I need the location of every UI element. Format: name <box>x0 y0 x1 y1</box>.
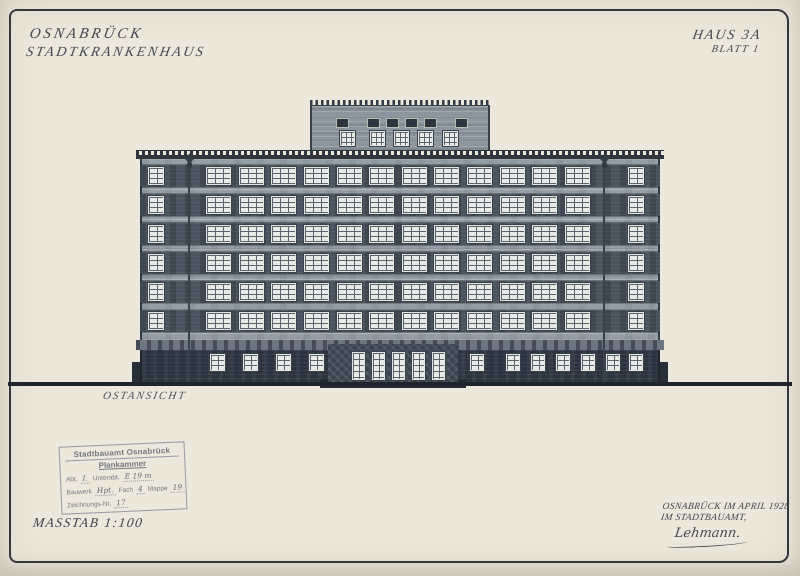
stamp-label: Abt. <box>66 476 78 483</box>
drawing-sheet: OSNABRÜCK STADTKRANKENHAUS HAUS 3A BLATT… <box>0 0 800 576</box>
lamp-ornament-icon <box>187 162 192 168</box>
stamp-value: 4 <box>136 484 145 494</box>
window <box>402 196 427 214</box>
window <box>532 312 557 330</box>
window <box>565 312 590 330</box>
stamp-label: Fach <box>118 487 133 495</box>
narrow-window <box>148 312 164 330</box>
window <box>434 312 459 330</box>
window <box>434 283 459 301</box>
window <box>206 196 231 214</box>
penthouse-vent-window <box>424 118 437 128</box>
office-line: IM STADTBAUAMT, <box>660 513 788 524</box>
window <box>304 196 329 214</box>
narrow-window <box>628 312 644 330</box>
window <box>206 225 231 243</box>
ground-window <box>309 354 324 371</box>
stamp-value: 17 <box>114 498 128 509</box>
window <box>369 283 394 301</box>
window <box>532 196 557 214</box>
penthouse-vent-window <box>336 118 349 128</box>
window <box>565 283 590 301</box>
penthouse-window <box>443 131 458 146</box>
window <box>565 225 590 243</box>
window <box>369 196 394 214</box>
window <box>271 196 296 214</box>
window <box>337 196 362 214</box>
window <box>500 283 525 301</box>
window <box>206 312 231 330</box>
ground-window <box>629 354 643 371</box>
window <box>434 254 459 272</box>
ground-window <box>506 354 520 371</box>
ground-window <box>276 354 291 371</box>
signature: Lehmann. <box>674 526 787 541</box>
narrow-window <box>628 167 644 185</box>
ground-window <box>243 354 258 371</box>
stamp-label: Mappe <box>148 485 168 493</box>
stamp-value: I. <box>80 473 90 483</box>
window <box>271 312 296 330</box>
entrance-door <box>412 352 425 380</box>
window <box>239 312 264 330</box>
window <box>434 167 459 185</box>
narrow-window <box>148 167 164 185</box>
ground-window <box>556 354 570 371</box>
window <box>532 254 557 272</box>
stamp-value: Hpt. <box>95 485 116 496</box>
ground-window <box>581 354 595 371</box>
window <box>500 167 525 185</box>
window <box>467 283 492 301</box>
penthouse-vent-window <box>455 118 468 128</box>
window <box>500 196 525 214</box>
entrance-door <box>372 352 385 380</box>
window <box>304 167 329 185</box>
window <box>500 225 525 243</box>
window <box>239 283 264 301</box>
window <box>239 196 264 214</box>
entrance-door <box>432 352 445 380</box>
window <box>500 312 525 330</box>
window <box>532 225 557 243</box>
window <box>271 283 296 301</box>
window <box>369 167 394 185</box>
stamp-row-zeichnung: Zeichnungs-Nr. 17 <box>67 495 181 510</box>
downpipe <box>603 168 605 382</box>
scale-label: MASSTAB 1:100 <box>32 515 145 531</box>
lamp-ornament-icon <box>602 162 607 168</box>
window <box>271 167 296 185</box>
date-line: OSNABRÜCK IM APRIL 1928 <box>662 502 790 513</box>
narrow-window <box>148 254 164 272</box>
window <box>467 225 492 243</box>
window <box>337 283 362 301</box>
window <box>271 225 296 243</box>
penthouse-vent-window <box>405 118 418 128</box>
stamp-label: Zeichnungs-Nr. <box>67 501 111 510</box>
window <box>337 167 362 185</box>
window <box>369 225 394 243</box>
window <box>337 225 362 243</box>
window <box>304 254 329 272</box>
downpipe <box>188 168 190 382</box>
window <box>337 254 362 272</box>
window <box>271 254 296 272</box>
ground-window <box>470 354 484 371</box>
window <box>402 312 427 330</box>
ground-window <box>210 354 225 371</box>
window <box>532 167 557 185</box>
narrow-window <box>628 254 644 272</box>
narrow-window <box>628 196 644 214</box>
window <box>434 196 459 214</box>
stamp-value: E 19 m <box>122 471 153 482</box>
window <box>402 283 427 301</box>
window <box>467 167 492 185</box>
window <box>369 254 394 272</box>
window <box>239 225 264 243</box>
window <box>239 254 264 272</box>
window <box>369 312 394 330</box>
window <box>467 196 492 214</box>
entrance-door <box>352 352 365 380</box>
narrow-window <box>148 225 164 243</box>
window <box>402 254 427 272</box>
date-signature-block: OSNABRÜCK IM APRIL 1928 IM STADTBAUAMT, … <box>657 502 790 547</box>
window <box>337 312 362 330</box>
narrow-window <box>628 225 644 243</box>
window <box>565 167 590 185</box>
ground-window <box>531 354 545 371</box>
window <box>206 254 231 272</box>
ground-window <box>606 354 620 371</box>
penthouse-window <box>394 131 409 146</box>
penthouse-vent-window <box>367 118 380 128</box>
window <box>467 312 492 330</box>
narrow-window <box>628 283 644 301</box>
window <box>565 254 590 272</box>
window <box>467 254 492 272</box>
narrow-window <box>148 283 164 301</box>
stamp-label: Unterabt. <box>93 474 120 482</box>
window <box>206 167 231 185</box>
narrow-window <box>148 196 164 214</box>
penthouse-window <box>340 131 355 146</box>
penthouse-window <box>418 131 433 146</box>
window <box>304 312 329 330</box>
plan-stamp: Stadtbauamt Osnabrück Plankammer Abt. I.… <box>59 441 188 514</box>
window <box>304 283 329 301</box>
window <box>239 167 264 185</box>
view-label: OSTANSICHT <box>102 390 187 402</box>
window <box>565 196 590 214</box>
window <box>402 167 427 185</box>
entrance-door <box>392 352 405 380</box>
window <box>434 225 459 243</box>
window <box>402 225 427 243</box>
window <box>206 283 231 301</box>
penthouse-window <box>370 131 385 146</box>
window <box>532 283 557 301</box>
penthouse-vent-window <box>386 118 399 128</box>
window <box>304 225 329 243</box>
window <box>500 254 525 272</box>
stamp-value: 19 <box>170 482 184 493</box>
stamp-label: Bauwerk <box>66 488 92 496</box>
